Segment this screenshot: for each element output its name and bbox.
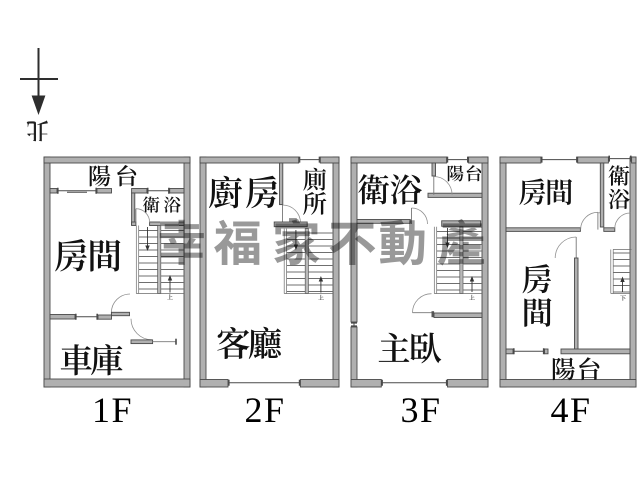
svg-text:3F: 3F [400,390,441,430]
svg-text:1F: 1F [92,390,133,430]
svg-text:2F: 2F [244,390,285,430]
svg-text:4F: 4F [550,390,591,430]
